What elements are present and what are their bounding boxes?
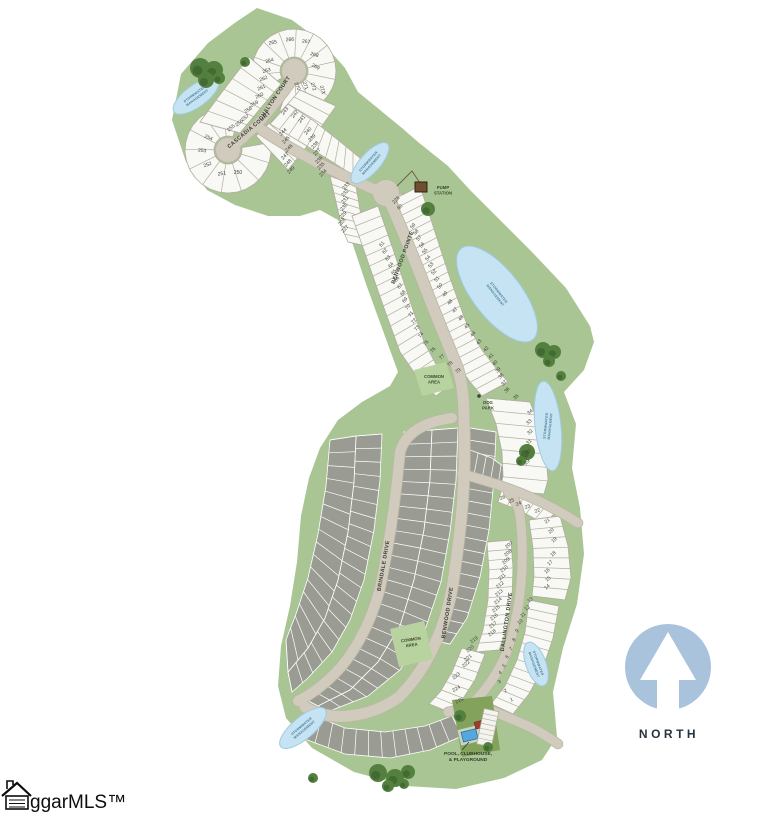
plat-map-svg: STORMWATERMANAGEMENTSTORMWATERMANAGEMENT…	[0, 0, 784, 814]
tree-shade	[545, 360, 551, 366]
tree-shade	[215, 77, 221, 83]
plat-map-image: STORMWATERMANAGEMENTSTORMWATERMANAGEMENT…	[0, 0, 784, 814]
tree-shade	[484, 746, 489, 751]
tree-shade	[557, 375, 562, 380]
lot-number: 267	[302, 39, 311, 46]
pool-label: POOL, CLUBHOUSE,	[444, 751, 493, 757]
tree-shade	[537, 348, 545, 356]
tree-shade	[309, 777, 314, 782]
watermark-text: ggarMLS™	[30, 792, 126, 813]
tree-shade	[400, 783, 405, 788]
lot-number: 253	[198, 148, 207, 155]
tree-shade	[403, 770, 410, 777]
lot-number: 250	[234, 170, 243, 176]
tree-shade	[241, 61, 246, 66]
tree-shade	[423, 207, 430, 214]
pump-station-icon	[415, 182, 427, 192]
lot-number: 251	[217, 170, 226, 177]
dog-park-dot-icon	[477, 394, 481, 398]
common-area-label-line: AREA	[428, 380, 440, 385]
common-area-label-line: COMMON	[424, 374, 444, 379]
tree-shade	[456, 715, 462, 721]
tree-shade	[384, 785, 390, 791]
pool-label: & PLAYGROUND	[449, 757, 488, 763]
dog-park-label: DOG	[483, 400, 493, 405]
tree-shade	[517, 460, 522, 465]
pump-station-label: STATION	[434, 191, 452, 196]
tree-shade	[371, 771, 380, 780]
north-arrow: NORTH	[625, 624, 711, 741]
dog-park-label: PARK	[482, 406, 495, 411]
lot-number: 266	[286, 37, 295, 44]
pump-station-label: PUMP	[437, 185, 450, 190]
north-label: NORTH	[639, 727, 699, 741]
mls-logo: ggarMLS™	[2, 781, 126, 813]
